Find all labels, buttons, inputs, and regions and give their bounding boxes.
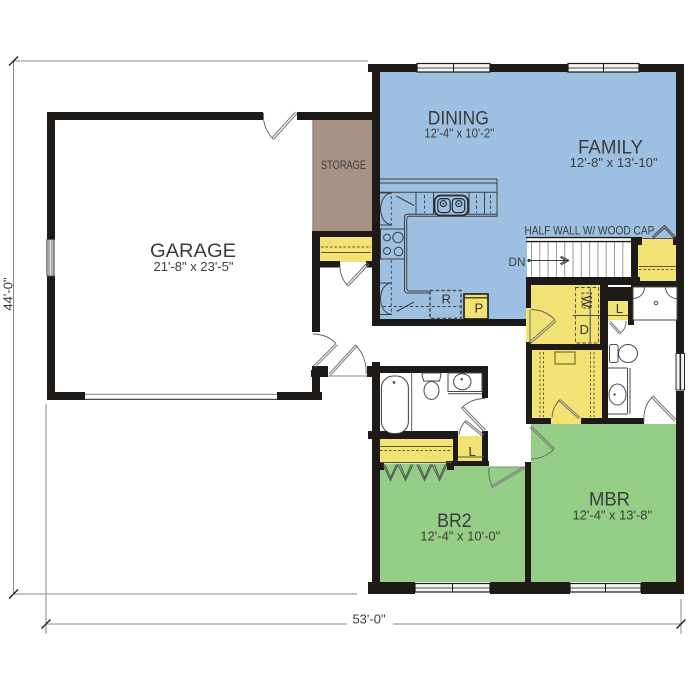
svg-text:L: L (469, 444, 476, 459)
svg-text:W: W (579, 296, 594, 309)
svg-text:R: R (442, 292, 451, 307)
svg-text:HALF WALL W/ WOOD CAP: HALF WALL W/ WOOD CAP (524, 224, 654, 238)
svg-text:12'-4" x 10'-0": 12'-4" x 10'-0" (420, 529, 500, 544)
svg-text:53'-0": 53'-0" (352, 612, 386, 627)
svg-text:L: L (616, 301, 623, 316)
svg-text:44'-0": 44'-0" (0, 277, 15, 311)
svg-text:12'-4" x 13'-8": 12'-4" x 13'-8" (573, 508, 653, 523)
svg-text:12'-4" x 10'-2": 12'-4" x 10'-2" (424, 126, 494, 141)
svg-text:12'-8" x 13'-10": 12'-8" x 13'-10" (570, 155, 658, 170)
svg-text:P: P (475, 301, 484, 316)
svg-text:DN: DN (509, 255, 526, 269)
svg-text:D: D (580, 322, 589, 337)
svg-text:21'-8" x 23'-5": 21'-8" x 23'-5" (154, 259, 234, 274)
svg-text:STORAGE: STORAGE (321, 158, 366, 172)
